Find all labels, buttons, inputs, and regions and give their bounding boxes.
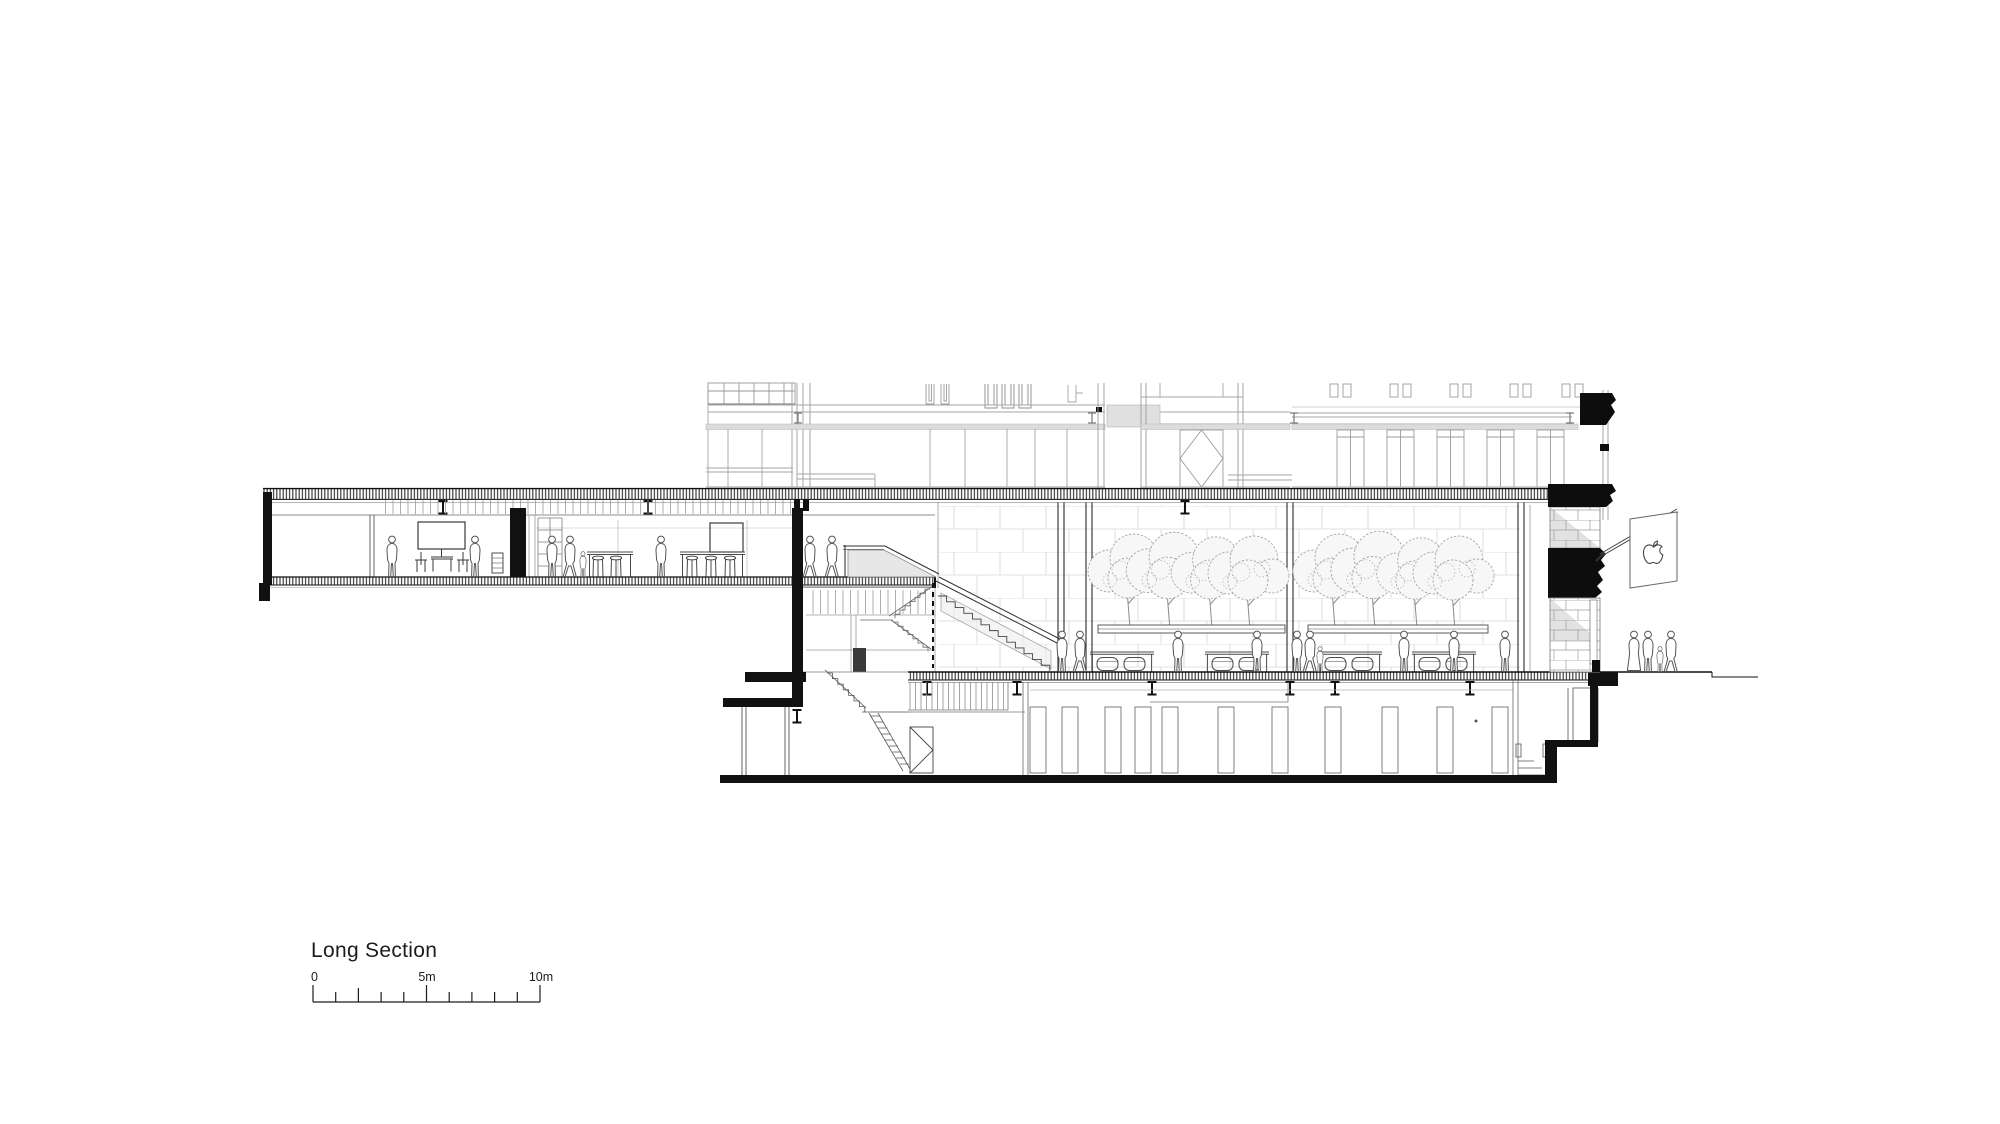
- drawing-title: Long Section: [311, 939, 437, 962]
- floor-beam: [1148, 682, 1157, 695]
- lift-door: [853, 648, 866, 672]
- scale-ticks: [313, 985, 540, 1002]
- partition-wall: [510, 508, 526, 577]
- apple-flag: [1596, 509, 1678, 588]
- chair: [415, 552, 427, 572]
- long-section-drawing: Long Section 0 5m 10m: [0, 0, 2000, 1124]
- wing-floor-slab: [263, 577, 935, 588]
- glass-balustrade: [848, 550, 936, 577]
- person-figure: [563, 536, 576, 576]
- drawing-sheet: Long Section 0 5m 10m: [0, 0, 2000, 1124]
- floor-beam: [1013, 682, 1022, 695]
- cornice-black: [1548, 484, 1616, 507]
- stool: [724, 556, 735, 577]
- person-figure: [387, 536, 397, 576]
- chair: [457, 552, 469, 572]
- scale-bar: 0 5m 10m: [311, 970, 553, 1002]
- stool: [592, 556, 603, 577]
- facade-cornice-black: [1580, 393, 1616, 425]
- scale-label-0: 0: [311, 970, 318, 984]
- person-figure: [1627, 631, 1640, 672]
- wall-display-screen: [418, 522, 465, 549]
- stool: [705, 556, 716, 577]
- wall-display-screen: [710, 523, 743, 552]
- stool: [610, 556, 621, 577]
- main-floor-slab: [908, 672, 1592, 695]
- entrance-pier: [1548, 484, 1616, 672]
- basement: [720, 672, 1618, 783]
- basement-slab: [720, 775, 1557, 783]
- exterior-ground: [1600, 672, 1758, 677]
- child-figure: [1657, 647, 1663, 672]
- child-figure: [580, 552, 586, 577]
- person-figure: [656, 536, 666, 576]
- person-figure: [1643, 631, 1653, 671]
- cornice-black: [1548, 548, 1606, 598]
- flag-panel: [1630, 512, 1677, 588]
- beam: [793, 710, 802, 723]
- floor-beam: [1466, 682, 1475, 695]
- person-figure: [1664, 631, 1677, 671]
- stair-flight: [827, 673, 865, 712]
- forum-table: [587, 552, 633, 577]
- left-end-wall: [259, 492, 272, 601]
- person-figure: [470, 536, 480, 576]
- scale-label-10m: 10m: [529, 970, 553, 984]
- scale-label-5m: 5m: [418, 970, 435, 984]
- meeting-room: [415, 522, 503, 573]
- person-figure: [803, 536, 816, 576]
- person-figure: [825, 536, 838, 576]
- title-block: Long Section: [311, 939, 437, 962]
- pit-walls: [742, 707, 789, 775]
- floor-beam: [1286, 682, 1295, 695]
- floor-beam: [1331, 682, 1340, 695]
- stool: [686, 556, 697, 577]
- basement-door: [910, 727, 933, 773]
- stair-flight: [893, 622, 928, 651]
- basement-doors: [1030, 707, 1508, 773]
